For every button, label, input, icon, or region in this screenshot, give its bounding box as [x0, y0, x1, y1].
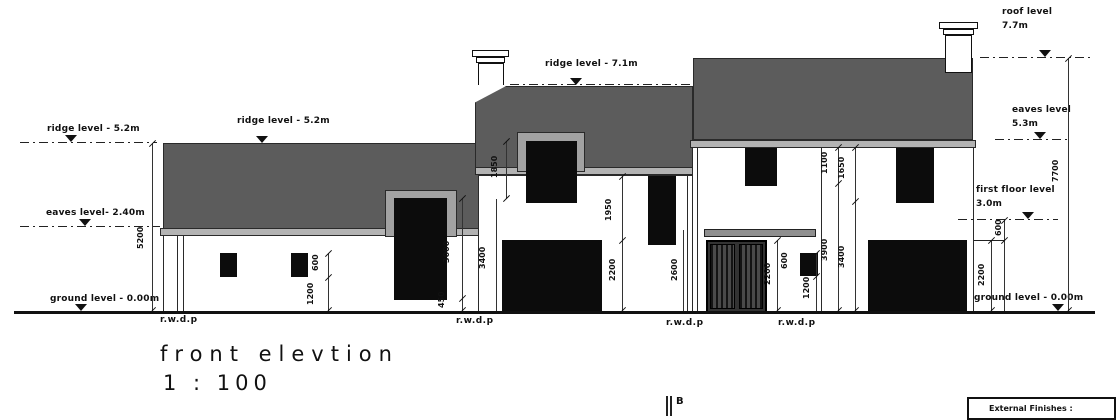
dim-left-window-1200: 1200 — [307, 279, 315, 309]
dim-7700: 7700 — [1052, 153, 1060, 189]
external-finishes-box: External Finishes : — [967, 397, 1116, 420]
dim-2200-mid: 2200 — [609, 254, 617, 286]
dim-5200: 5200 — [137, 222, 145, 254]
dim-line-7700 — [1068, 58, 1069, 311]
mid-downpipe-line-a — [687, 175, 688, 312]
eaves-left-label: eaves level- 2.40m — [46, 208, 145, 218]
rwdp-label-4: r.w.d.p — [778, 318, 816, 328]
dim-line-canopy — [683, 230, 684, 311]
roof-right-label-2: 7.7m — [1002, 21, 1028, 31]
ground-line — [14, 311, 1095, 314]
first-floor-label-1: first floor level — [976, 185, 1055, 195]
entrance-double-door — [706, 240, 767, 313]
ridge-left-marker — [65, 135, 77, 142]
dim-2600: 2600 — [671, 254, 679, 286]
dim-line-door — [777, 240, 778, 311]
ridge-left2-marker — [256, 136, 268, 143]
left-downpipe-line-b — [183, 236, 184, 312]
ridge-mid-level-line — [510, 84, 693, 85]
roof-right-level-line — [980, 57, 1090, 58]
dim-3400-left: 3400 — [479, 243, 487, 273]
left-window-2 — [291, 253, 308, 277]
dim-1850: 1850 — [491, 150, 499, 184]
right-roof — [693, 58, 973, 140]
left-window-1 — [220, 253, 237, 277]
right-chimney-cap-top — [939, 22, 978, 29]
first-floor-level-line — [958, 219, 1058, 220]
rwdp-label-3: r.w.d.p — [666, 318, 704, 328]
first-floor-marker — [1022, 212, 1034, 219]
external-finishes-label: External Finishes : — [989, 404, 1073, 413]
section-marker-bar-b — [670, 396, 672, 416]
dim-left-window-600: 600 — [312, 251, 320, 275]
dim-450: 450 — [438, 290, 446, 310]
eaves-right-marker — [1034, 132, 1046, 139]
ground-right-marker — [1052, 304, 1064, 311]
dim-1650: 1650 — [838, 151, 846, 185]
rwdp-label-1: r.w.d.p — [160, 315, 198, 325]
ridge-left2-label: ridge level - 5.2m — [237, 116, 330, 126]
dim-3900: 3900 — [821, 234, 829, 266]
dim-1200-door: 1200 — [803, 273, 811, 303]
right-chimney-body — [945, 35, 972, 73]
dim-line-door-window — [816, 253, 817, 311]
right-window — [896, 148, 934, 203]
drawing-scale: 1 : 100 — [163, 371, 272, 395]
entrance-canopy — [704, 229, 816, 237]
dim-2200-door: 2200 — [764, 258, 772, 290]
dim-line-left-garage-overall — [496, 199, 497, 311]
door-section-window — [745, 148, 777, 186]
door-panel-left — [710, 244, 735, 309]
section-marker-label: B — [676, 396, 684, 407]
eaves-right-level-line — [995, 139, 1067, 140]
roof-right-label-1: roof level — [1002, 7, 1052, 17]
mid-garage-door — [502, 240, 602, 312]
eaves-right-label-1: eaves level — [1012, 105, 1071, 115]
mid-chimney-cap-top — [472, 50, 509, 57]
dim-line-right-garage — [991, 240, 992, 311]
dim-line-mid — [622, 176, 623, 311]
door-panel-right — [739, 244, 764, 309]
rwdp-label-2: r.w.d.p — [456, 316, 494, 326]
dim-1950: 1950 — [605, 194, 613, 226]
dim-2200-right: 2200 — [978, 259, 986, 291]
mid-downpipe-line-b — [692, 175, 693, 312]
roof-right-marker — [1039, 50, 1051, 57]
dim-1100: 1100 — [821, 148, 829, 178]
ridge-left-level-line — [20, 142, 157, 143]
dormer-window — [526, 141, 577, 203]
dim-3000: 3000 — [443, 236, 451, 268]
ground-left-marker — [75, 304, 87, 311]
elevation-drawing: ridge level - 5.2m ridge level - 5.2m ea… — [0, 0, 1117, 420]
dim-line-left-windows — [328, 253, 329, 311]
dim-3400-right: 3400 — [838, 242, 846, 272]
ground-left-label: ground level - 0.00m — [50, 294, 159, 304]
dim-line-left-garage — [462, 198, 463, 311]
section-marker-bar-a — [666, 396, 668, 416]
dim-line-right-b — [855, 147, 856, 311]
ridge-mid-marker — [570, 78, 582, 85]
eaves-right-label-2: 5.3m — [1012, 119, 1038, 129]
left-downpipe-line-a — [177, 236, 178, 312]
dim-line-5200 — [152, 143, 153, 311]
right-garage-door — [868, 240, 967, 312]
left-garage-door — [394, 198, 447, 300]
dim-line-dormer — [506, 141, 507, 199]
first-floor-label-2: 3.0m — [976, 199, 1002, 209]
dim-600-door: 600 — [781, 249, 789, 273]
right-fascia — [690, 140, 976, 148]
dim-600-right: 600 — [995, 215, 1003, 241]
eaves-left-marker — [79, 219, 91, 226]
ridge-left-label: ridge level - 5.2m — [47, 124, 140, 134]
mid-window — [648, 176, 676, 245]
ridge-mid-label: ridge level - 7.1m — [545, 59, 638, 69]
drawing-title: front elevtion — [160, 342, 399, 366]
dim-line-right-step — [1004, 220, 1005, 311]
